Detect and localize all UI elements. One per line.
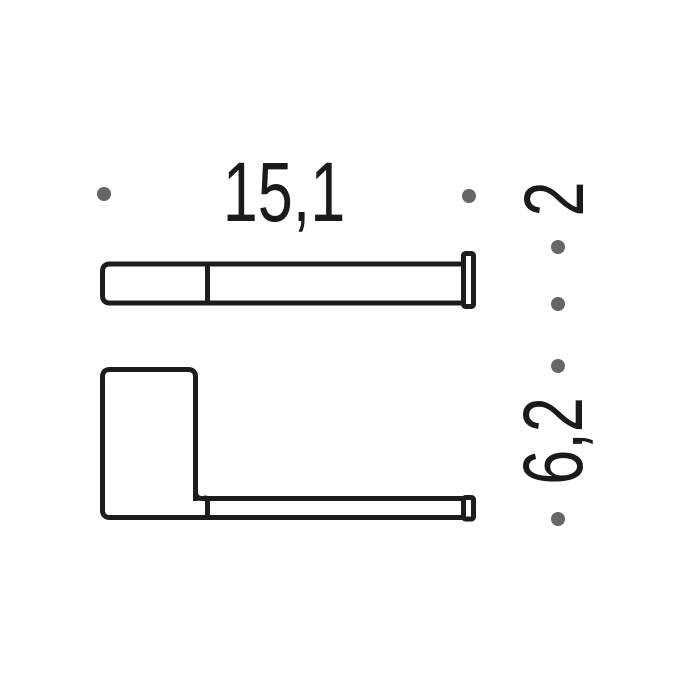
width-dimension-left-dot — [97, 187, 111, 201]
product-line-drawing — [0, 0, 700, 700]
height-dimension-top-dot — [551, 359, 565, 373]
top-view-wall-plate — [464, 254, 474, 307]
depth-dimension-label: 2 — [512, 181, 596, 216]
height-dimension-bottom-dot — [551, 512, 565, 526]
dimension-drawing-canvas: 15,1 2 6,2 — [0, 0, 700, 700]
width-dimension-right-dot — [462, 189, 476, 203]
top-view-bar — [103, 264, 467, 303]
height-dimension-label: 6,2 — [511, 397, 595, 485]
width-dimension-label: 15,1 — [223, 150, 346, 234]
front-view-wall-plate — [464, 498, 474, 520]
depth-dimension-top-dot — [551, 240, 565, 254]
front-view-junction-curve — [196, 489, 210, 499]
front-view-body — [103, 370, 467, 518]
depth-dimension-bottom-dot — [551, 297, 565, 311]
